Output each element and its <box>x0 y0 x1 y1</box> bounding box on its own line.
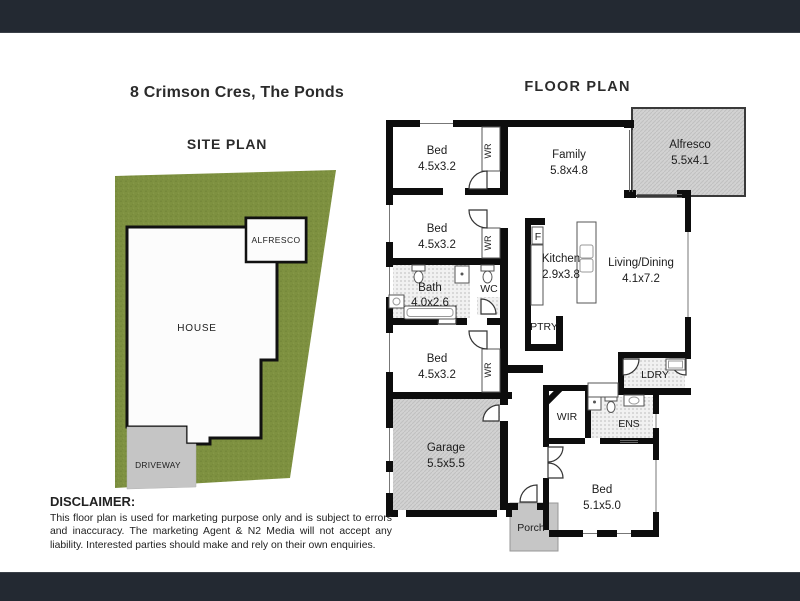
alfresco-dims: 5.5x4.1 <box>671 155 709 167</box>
bath-dims: 4.0x2.6 <box>411 297 449 309</box>
site-plan-title: SITE PLAN <box>40 136 414 152</box>
bed1-label: Bed <box>427 145 447 157</box>
bed2-door <box>469 210 487 228</box>
wr2-label: WR <box>483 235 493 250</box>
ensuite-label: ENS <box>618 418 640 430</box>
site-plan: ALFRESCO HOUSE DRIVEWAY <box>100 160 350 500</box>
kitchen-label: Kitchen <box>542 253 580 265</box>
master-bed-label: Bed <box>592 484 612 496</box>
front-door <box>520 485 537 502</box>
laundry-label: LDRY <box>641 369 669 381</box>
floor-plan-title: FLOOR PLAN <box>380 79 775 95</box>
bed3-door <box>469 331 487 349</box>
small-labels: WR WR WR WC F PTRY LDRY LIN WIR ENS Porc… <box>480 143 669 534</box>
wir-label: WIR <box>557 411 578 423</box>
bath-vanity <box>389 295 404 308</box>
site-alfresco-label: ALFRESCO <box>251 235 300 245</box>
bed2-label: Bed <box>427 223 447 235</box>
master-door-lower <box>548 463 563 478</box>
site-driveway <box>127 427 196 489</box>
disclaimer-heading: DISCLAIMER: <box>50 494 392 509</box>
fridge-label: F <box>535 231 541 243</box>
family-label: Family <box>552 149 586 161</box>
family-dims: 5.8x4.8 <box>550 165 588 177</box>
living-dining-dims: 4.1x7.2 <box>622 273 660 285</box>
bed1-door <box>469 171 487 189</box>
alfresco-label: Alfresco <box>669 139 711 151</box>
wr1-label: WR <box>483 143 493 158</box>
garage-label: Garage <box>427 442 465 454</box>
wr3-label: WR <box>483 362 493 377</box>
address-title: 8 Crimson Cres, The Ponds <box>37 84 437 102</box>
linen-cupboard <box>588 383 618 397</box>
bed3-label: Bed <box>427 353 447 365</box>
site-driveway-label: DRIVEWAY <box>135 460 181 470</box>
bed1-dims: 4.5x3.2 <box>418 161 456 173</box>
floor-plan: Bed 4.5x3.2 Bed 4.5x3.2 Bath 4.0x2.6 Bed… <box>380 100 752 555</box>
wc-label: WC <box>480 283 498 295</box>
wc-toilet <box>481 265 494 271</box>
master-bed-dims: 5.1x5.0 <box>583 500 621 512</box>
kitchen-dims: 2.9x3.8 <box>542 269 580 281</box>
top-bar <box>0 0 800 33</box>
garage-dims: 5.5x5.5 <box>427 458 465 470</box>
bottom-bar <box>0 572 800 601</box>
master-door-upper <box>548 447 563 462</box>
pantry-label: PTRY <box>530 321 558 333</box>
alfresco-area <box>632 108 745 196</box>
living-dining-label: Living/Dining <box>608 257 674 269</box>
bed2-dims: 4.5x3.2 <box>418 239 456 251</box>
bath-label: Bath <box>418 282 442 294</box>
disclaimer: DISCLAIMER: This floor plan is used for … <box>50 494 392 552</box>
disclaimer-body: This floor plan is used for marketing pu… <box>50 512 392 552</box>
site-house-label: HOUSE <box>177 323 217 334</box>
bed3-dims: 4.5x3.2 <box>418 369 456 381</box>
bath-toilet <box>412 265 425 271</box>
porch-label: Porch <box>517 522 545 534</box>
